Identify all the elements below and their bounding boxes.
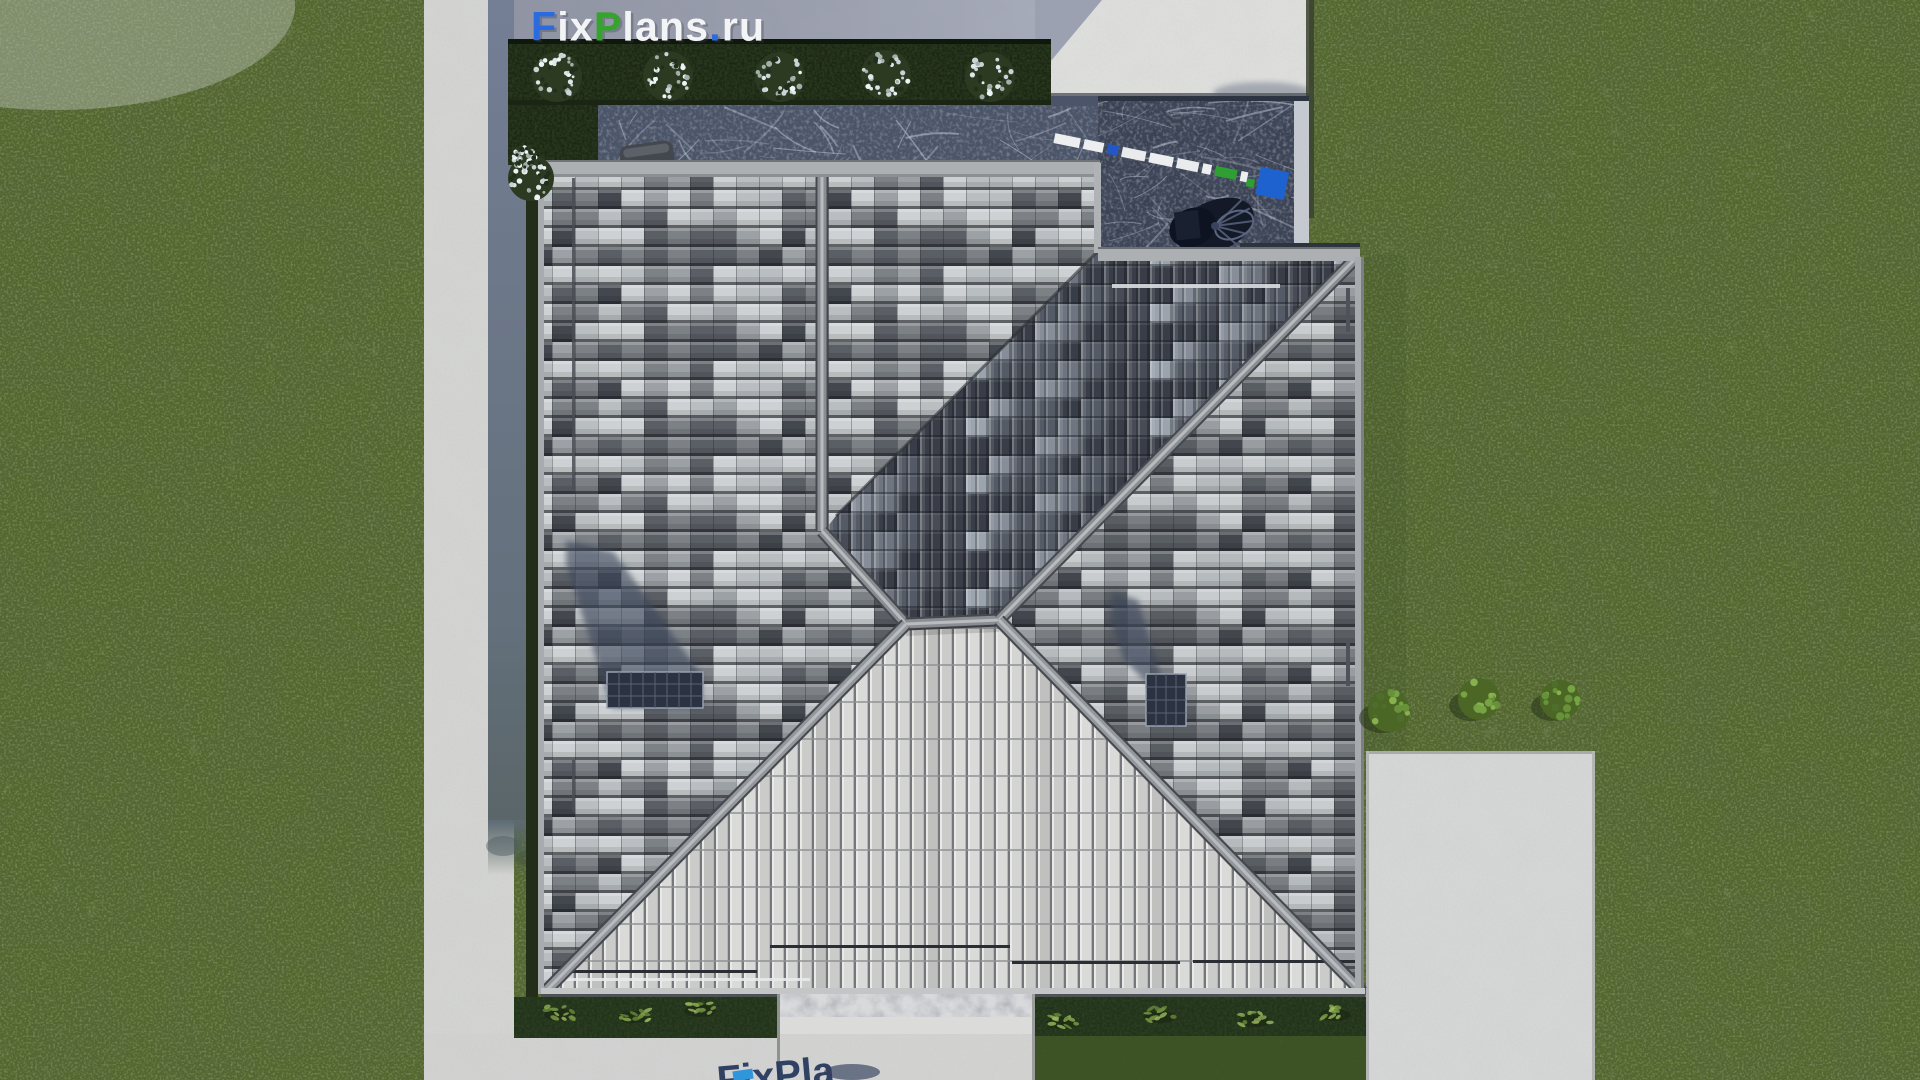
svg-text:FixPlans.ru: FixPlans.ru (531, 4, 765, 50)
